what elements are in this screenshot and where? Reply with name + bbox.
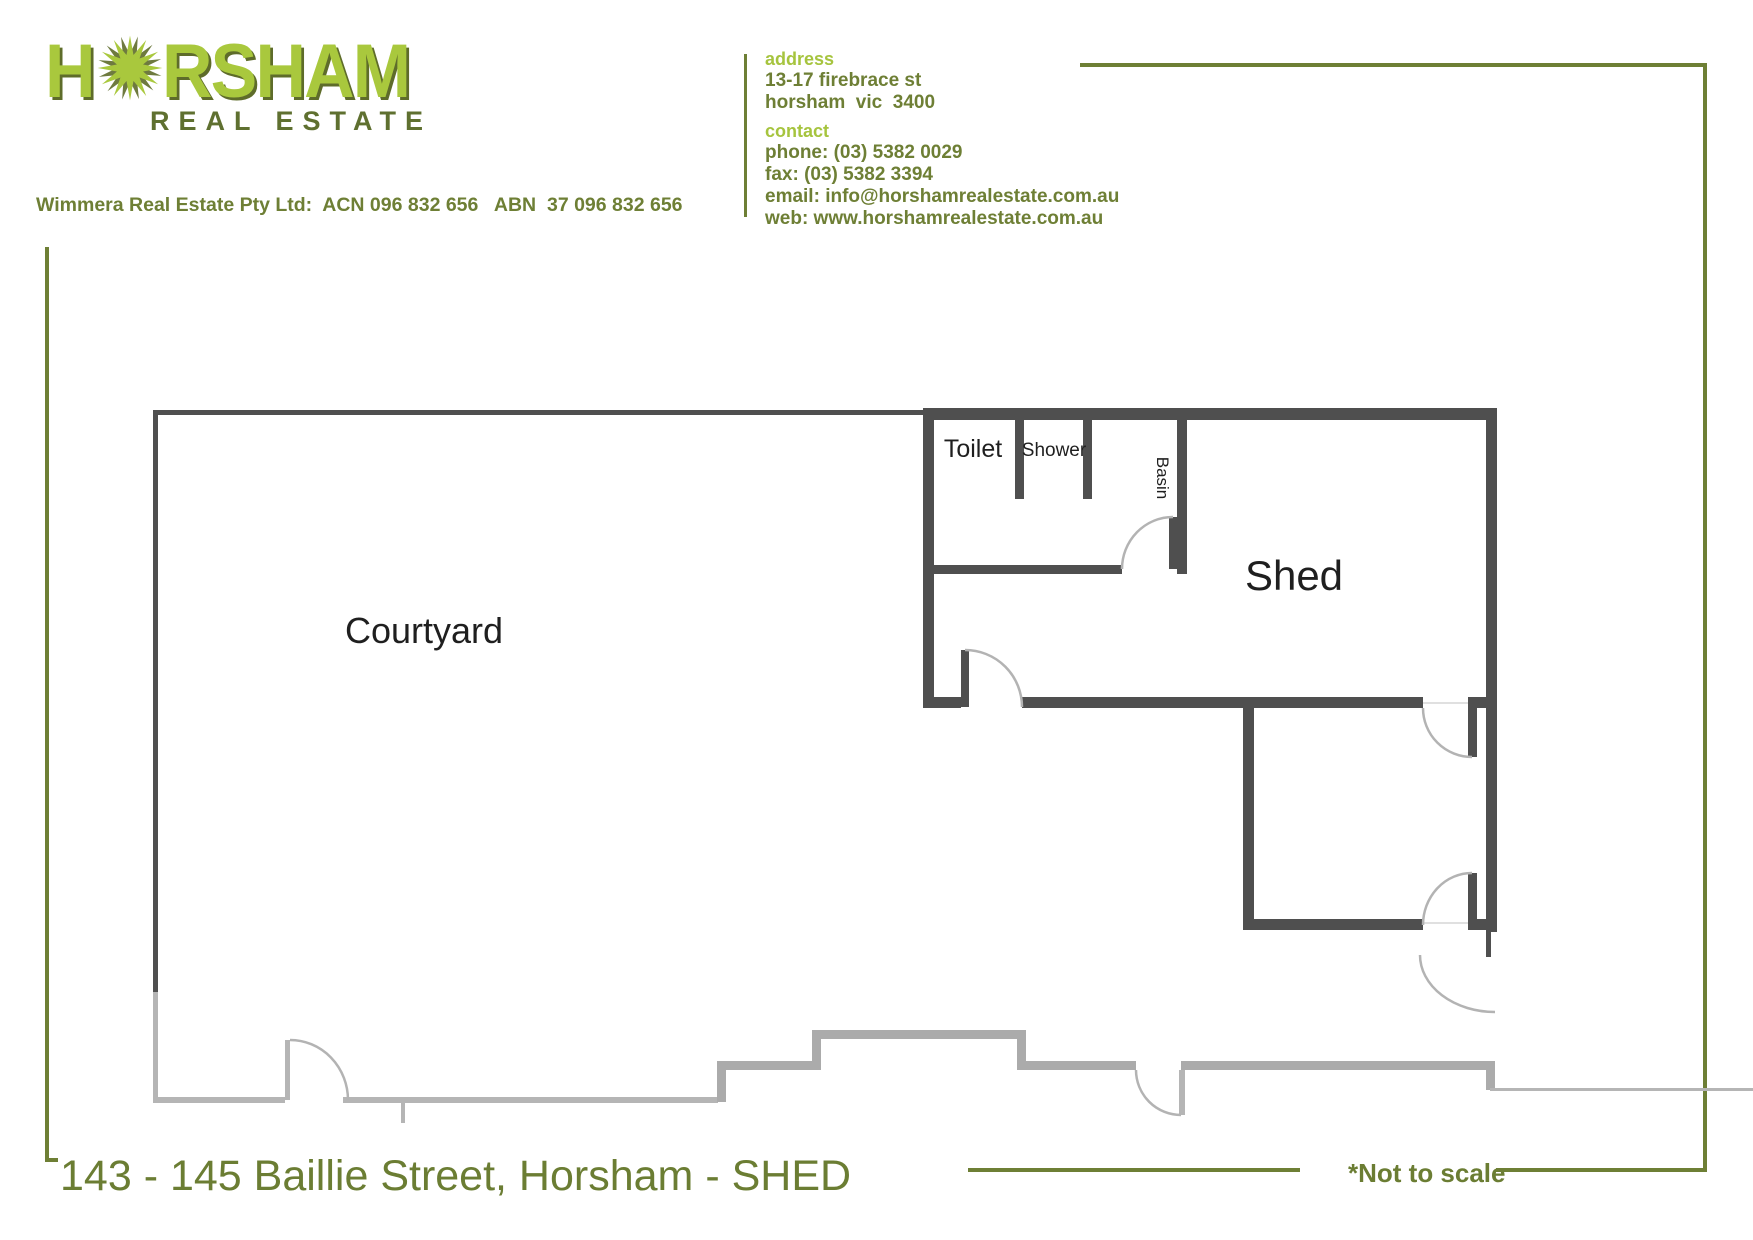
floor-plan [0, 0, 1753, 1240]
shed-label: Shed [1204, 552, 1384, 600]
courtyard-label: Courtyard [324, 610, 524, 652]
toilet-label: Toilet [925, 435, 1021, 464]
page-title: 143 - 145 Baillie Street, Horsham - SHED [60, 1152, 851, 1201]
not-to-scale-note: *Not to scale [1348, 1158, 1506, 1189]
faded-structure [153, 955, 1753, 1123]
shower-label: Shower [1020, 440, 1088, 462]
courtyard-walls [153, 410, 930, 992]
lower-room-walls [1243, 708, 1497, 957]
basin-label: Basin [1136, 452, 1188, 504]
footer-rule-right [1496, 1168, 1705, 1172]
footer-rule-left [968, 1168, 1300, 1172]
